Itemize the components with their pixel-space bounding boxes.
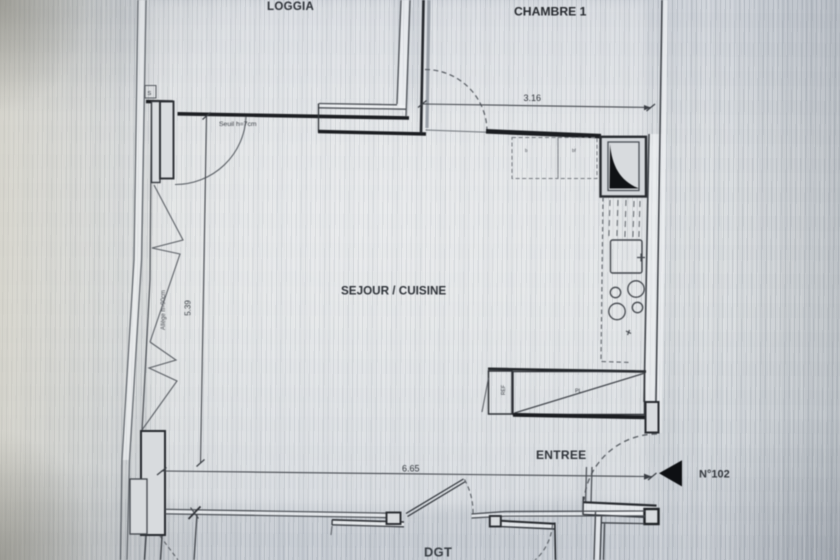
svg-text:3.16: 3.16 <box>524 93 542 103</box>
svg-text:PL: PL <box>575 389 582 395</box>
svg-text:5.39: 5.39 <box>184 300 193 316</box>
svg-text:s: s <box>148 88 152 97</box>
svg-text:Allège h=90cm: Allège h=90cm <box>161 290 167 330</box>
svg-text:6.65: 6.65 <box>402 464 420 474</box>
svg-text:REF: REF <box>501 385 507 395</box>
svg-text:DGT: DGT <box>424 545 452 560</box>
svg-text:Seuil h=7cm: Seuil h=7cm <box>219 121 257 128</box>
svg-text:N°102: N°102 <box>699 469 730 481</box>
svg-text:LOGGIA: LOGGIA <box>267 1 314 13</box>
svg-text:SEJOUR / CUISINE: SEJOUR / CUISINE <box>341 285 446 298</box>
svg-text:CHAMBRE 1: CHAMBRE 1 <box>514 5 587 19</box>
svg-text:ENTREE: ENTREE <box>536 448 586 462</box>
